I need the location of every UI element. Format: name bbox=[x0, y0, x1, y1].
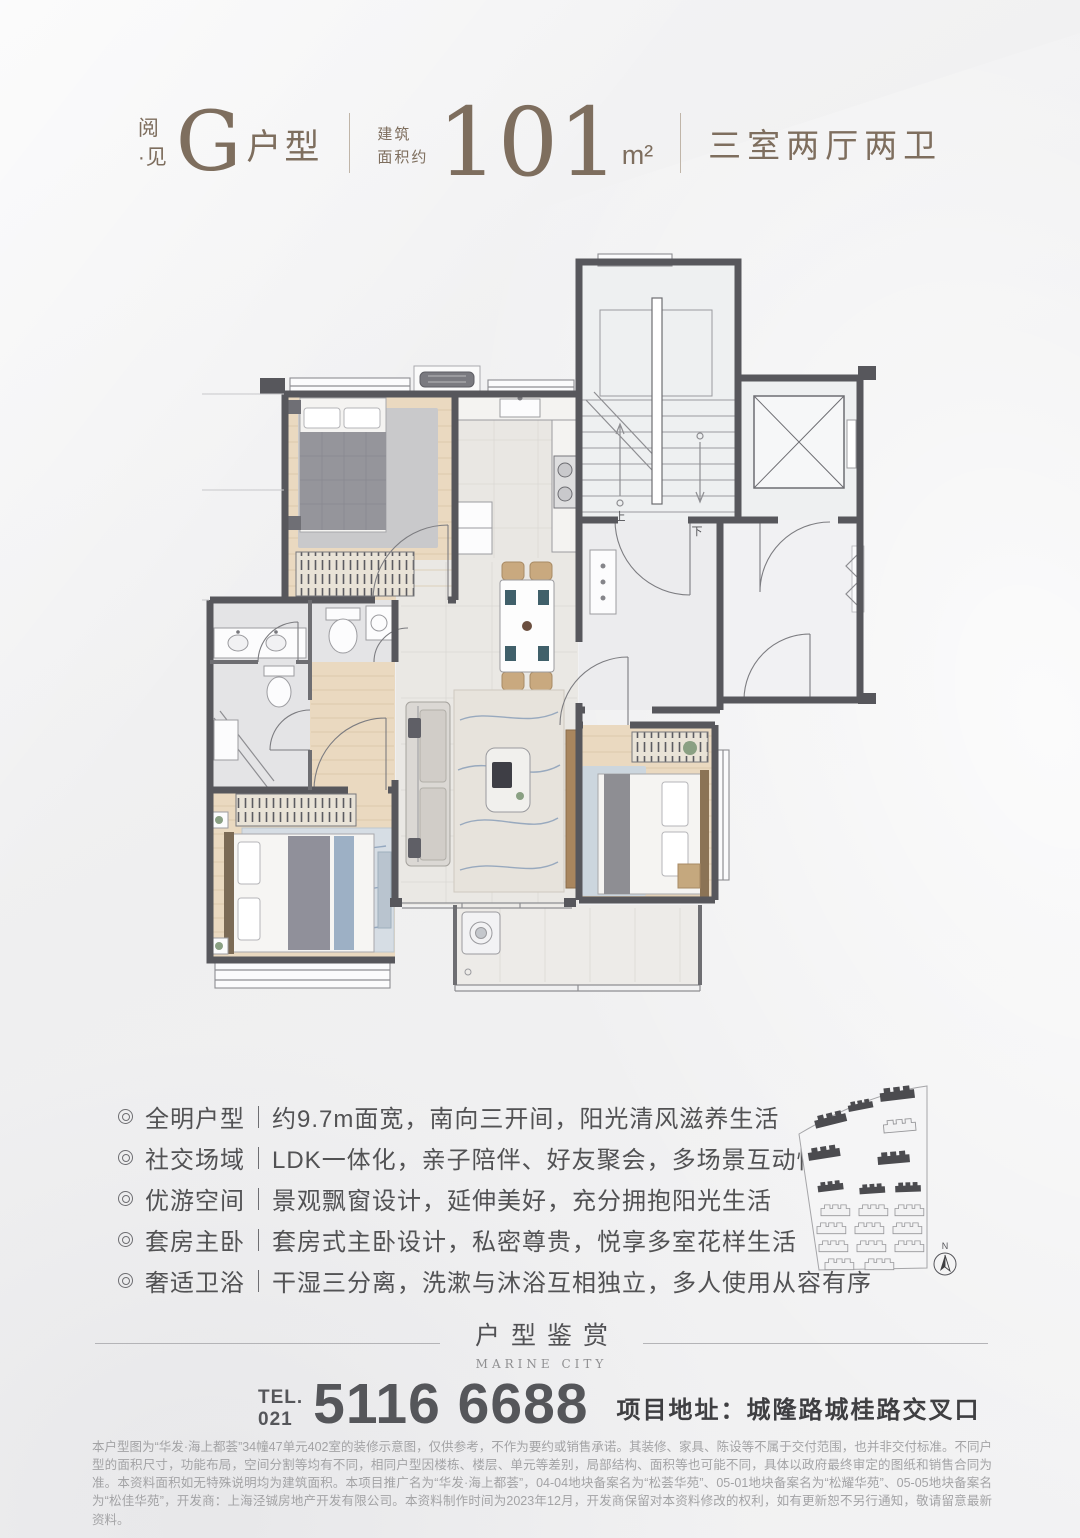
tel-label: TEL. bbox=[258, 1387, 303, 1409]
feature-separator bbox=[258, 1147, 259, 1169]
tel-area-code: 021 bbox=[258, 1409, 303, 1431]
compass-icon: N bbox=[934, 1241, 956, 1275]
feature-item: 社交场域 LDK一体化，亲子陪伴、好友聚会，多场景互动性 bbox=[118, 1137, 872, 1178]
feature-item: 奢适卫浴 干湿三分离，洗漱与沐浴互相独立，多人使用从容有序 bbox=[118, 1260, 872, 1301]
section-divider: 户型鉴赏 MARINE CITY bbox=[95, 1316, 988, 1371]
feature-list: 全明户型 约9.7m面宽，南向三开间，阳光清风滋养生活 社交场域 LDK一体化，… bbox=[118, 1096, 872, 1301]
feature-desc: 景观飘窗设计，延伸美好，充分拥抱阳光生活 bbox=[272, 1181, 772, 1216]
project-address: 项目地址：城隆路城桂路交叉口 bbox=[616, 1390, 980, 1430]
feature-separator bbox=[258, 1106, 259, 1128]
feature-bullet-icon bbox=[118, 1150, 133, 1165]
feature-separator bbox=[258, 1229, 259, 1251]
area-label-line-1: 建筑 bbox=[377, 123, 428, 146]
feature-desc: 套房式主卧设计，私密尊贵，悦享多室花样生活 bbox=[272, 1222, 797, 1257]
feature-item: 套房主卧 套房式主卧设计，私密尊贵，悦享多室花样生活 bbox=[118, 1219, 872, 1260]
brand-line-1: 阅 bbox=[138, 114, 168, 143]
feature-separator bbox=[258, 1270, 259, 1292]
room-layout-text: 三室两厅两卫 bbox=[708, 119, 942, 167]
divider-title: 户型鉴赏 bbox=[464, 1316, 619, 1352]
header-divider-line-2 bbox=[680, 113, 681, 173]
area-unit: m² bbox=[622, 140, 653, 180]
brand-name: 阅 ·见 bbox=[138, 114, 168, 173]
feature-bullet-icon bbox=[118, 1232, 133, 1247]
unit-type-suffix: 户型 bbox=[246, 119, 322, 177]
elevator-icon bbox=[754, 396, 856, 488]
feature-item: 全明户型 约9.7m面宽，南向三开间，阳光清风滋养生活 bbox=[118, 1096, 872, 1137]
divider-line-right bbox=[643, 1343, 988, 1344]
divider-line-left bbox=[95, 1343, 440, 1344]
feature-bullet-icon bbox=[118, 1109, 133, 1124]
feature-title: 社交场域 bbox=[145, 1140, 245, 1175]
area-label-line-2: 面积约 bbox=[377, 146, 428, 169]
compass-north-label: N bbox=[942, 1241, 949, 1251]
disclaimer-text: 本户型图为“华发·海上都荟”34幢47单元402室的装修示意图，仅供参考，不作为… bbox=[92, 1438, 992, 1529]
divider-text: 户型鉴赏 MARINE CITY bbox=[464, 1316, 619, 1371]
site-map: N bbox=[795, 1076, 1005, 1294]
area-label: 建筑 面积约 bbox=[377, 123, 428, 181]
area-value: 101 bbox=[437, 106, 618, 180]
feature-desc: 约9.7m面宽，南向三开间，阳光清风滋养生活 bbox=[272, 1099, 779, 1134]
feature-separator bbox=[258, 1188, 259, 1210]
header: 阅 ·见 G 户型 建筑 面积约 101 m² 三室两厅两卫 bbox=[0, 106, 1080, 180]
unit-type: G 户型 bbox=[176, 109, 323, 176]
unit-type-letter: G bbox=[176, 109, 242, 176]
poster-page: 阅 ·见 G 户型 建筑 面积约 101 m² 三室两厅两卫 bbox=[0, 0, 1080, 1538]
brand-line-2: ·见 bbox=[138, 143, 168, 172]
contact-block: TEL. 021 5116 6688 项目地址：城隆路城桂路交叉口 bbox=[258, 1378, 980, 1430]
dining-table bbox=[500, 562, 554, 690]
tel-label-block: TEL. 021 bbox=[258, 1387, 303, 1431]
feature-title: 套房主卧 bbox=[145, 1222, 245, 1257]
stairs-down-label: 下 bbox=[692, 526, 703, 538]
feature-bullet-icon bbox=[118, 1191, 133, 1206]
feature-title: 全明户型 bbox=[145, 1099, 245, 1134]
feature-title: 优游空间 bbox=[145, 1181, 245, 1216]
feature-bullet-icon bbox=[118, 1273, 133, 1288]
feature-item: 优游空间 景观飘窗设计，延伸美好，充分拥抱阳光生活 bbox=[118, 1178, 872, 1219]
divider-subtitle: MARINE CITY bbox=[464, 1357, 619, 1371]
living-room bbox=[406, 690, 577, 892]
header-divider-line bbox=[349, 113, 350, 173]
area-info: 建筑 面积约 101 m² bbox=[377, 106, 653, 180]
feature-desc: LDK一体化，亲子陪伴、好友聚会，多场景互动性 bbox=[272, 1140, 822, 1175]
feature-desc: 干湿三分离，洗漱与沐浴互相独立，多人使用从容有序 bbox=[272, 1263, 872, 1298]
feature-title: 奢适卫浴 bbox=[145, 1263, 245, 1298]
phone-number: 5116 6688 bbox=[313, 1378, 588, 1430]
floorplan: 上 下 bbox=[200, 250, 880, 1020]
